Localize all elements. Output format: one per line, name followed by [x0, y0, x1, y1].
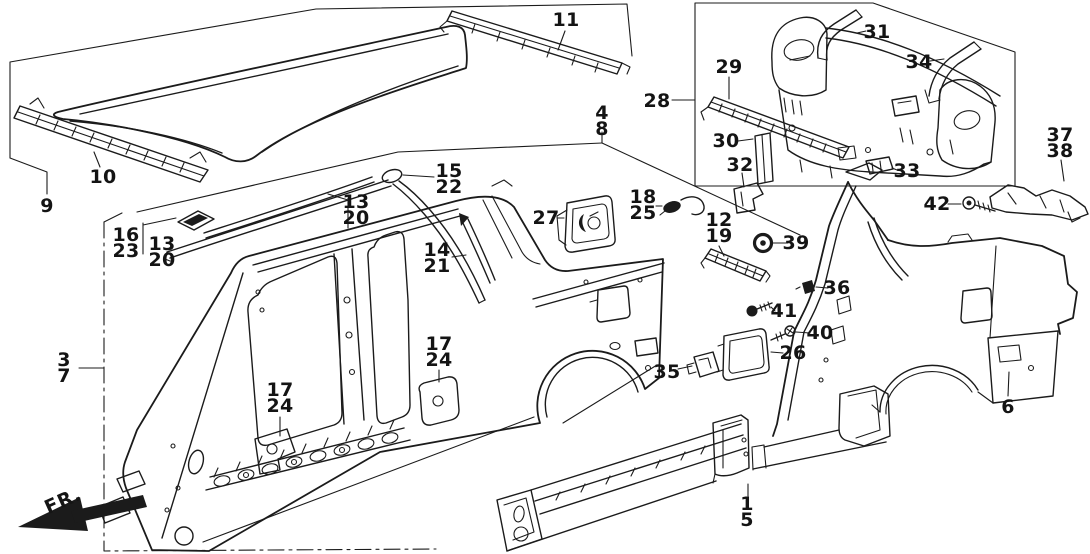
callout-18-25: 1825 — [629, 189, 656, 221]
callout-26: 26 — [779, 345, 806, 361]
callout-42: 42 — [923, 196, 950, 212]
callout-12-19: 1219 — [705, 212, 732, 244]
callout-33: 33 — [893, 163, 920, 179]
callout-13-20-b: 1320 — [342, 194, 369, 226]
parts-diagram: 9101623132013201522142127114828182512192… — [0, 0, 1090, 554]
callout-35: 35 — [653, 364, 680, 380]
callout-13-20-a: 1320 — [148, 236, 175, 268]
callout-36: 36 — [823, 280, 850, 296]
callout-11: 11 — [552, 12, 579, 28]
callout-layer: 9101623132013201522142127114828182512192… — [0, 0, 1090, 554]
callout-17-24-a: 1724 — [266, 382, 293, 414]
callout-27: 27 — [532, 210, 559, 226]
callout-17-24-b: 1724 — [425, 336, 452, 368]
callout-4-8: 48 — [595, 105, 609, 137]
callout-3-7: 37 — [57, 352, 71, 384]
callout-14-21: 1421 — [423, 242, 450, 274]
callout-31: 31 — [863, 24, 890, 40]
callout-9: 9 — [40, 198, 54, 214]
callout-10: 10 — [89, 169, 116, 185]
callout-6: 6 — [1001, 399, 1015, 415]
callout-37-38: 3738 — [1046, 127, 1073, 159]
callout-15-22: 1522 — [435, 163, 462, 195]
callout-41: 41 — [770, 303, 797, 319]
callout-34: 34 — [905, 54, 932, 70]
callout-30: 30 — [712, 133, 739, 149]
callout-40: 40 — [806, 325, 833, 341]
callout-29: 29 — [715, 59, 742, 75]
callout-32: 32 — [726, 157, 753, 173]
callout-28: 28 — [643, 93, 670, 109]
callout-39: 39 — [782, 235, 809, 251]
callout-1-5: 15 — [740, 496, 754, 528]
callout-16-23: 1623 — [112, 227, 139, 259]
